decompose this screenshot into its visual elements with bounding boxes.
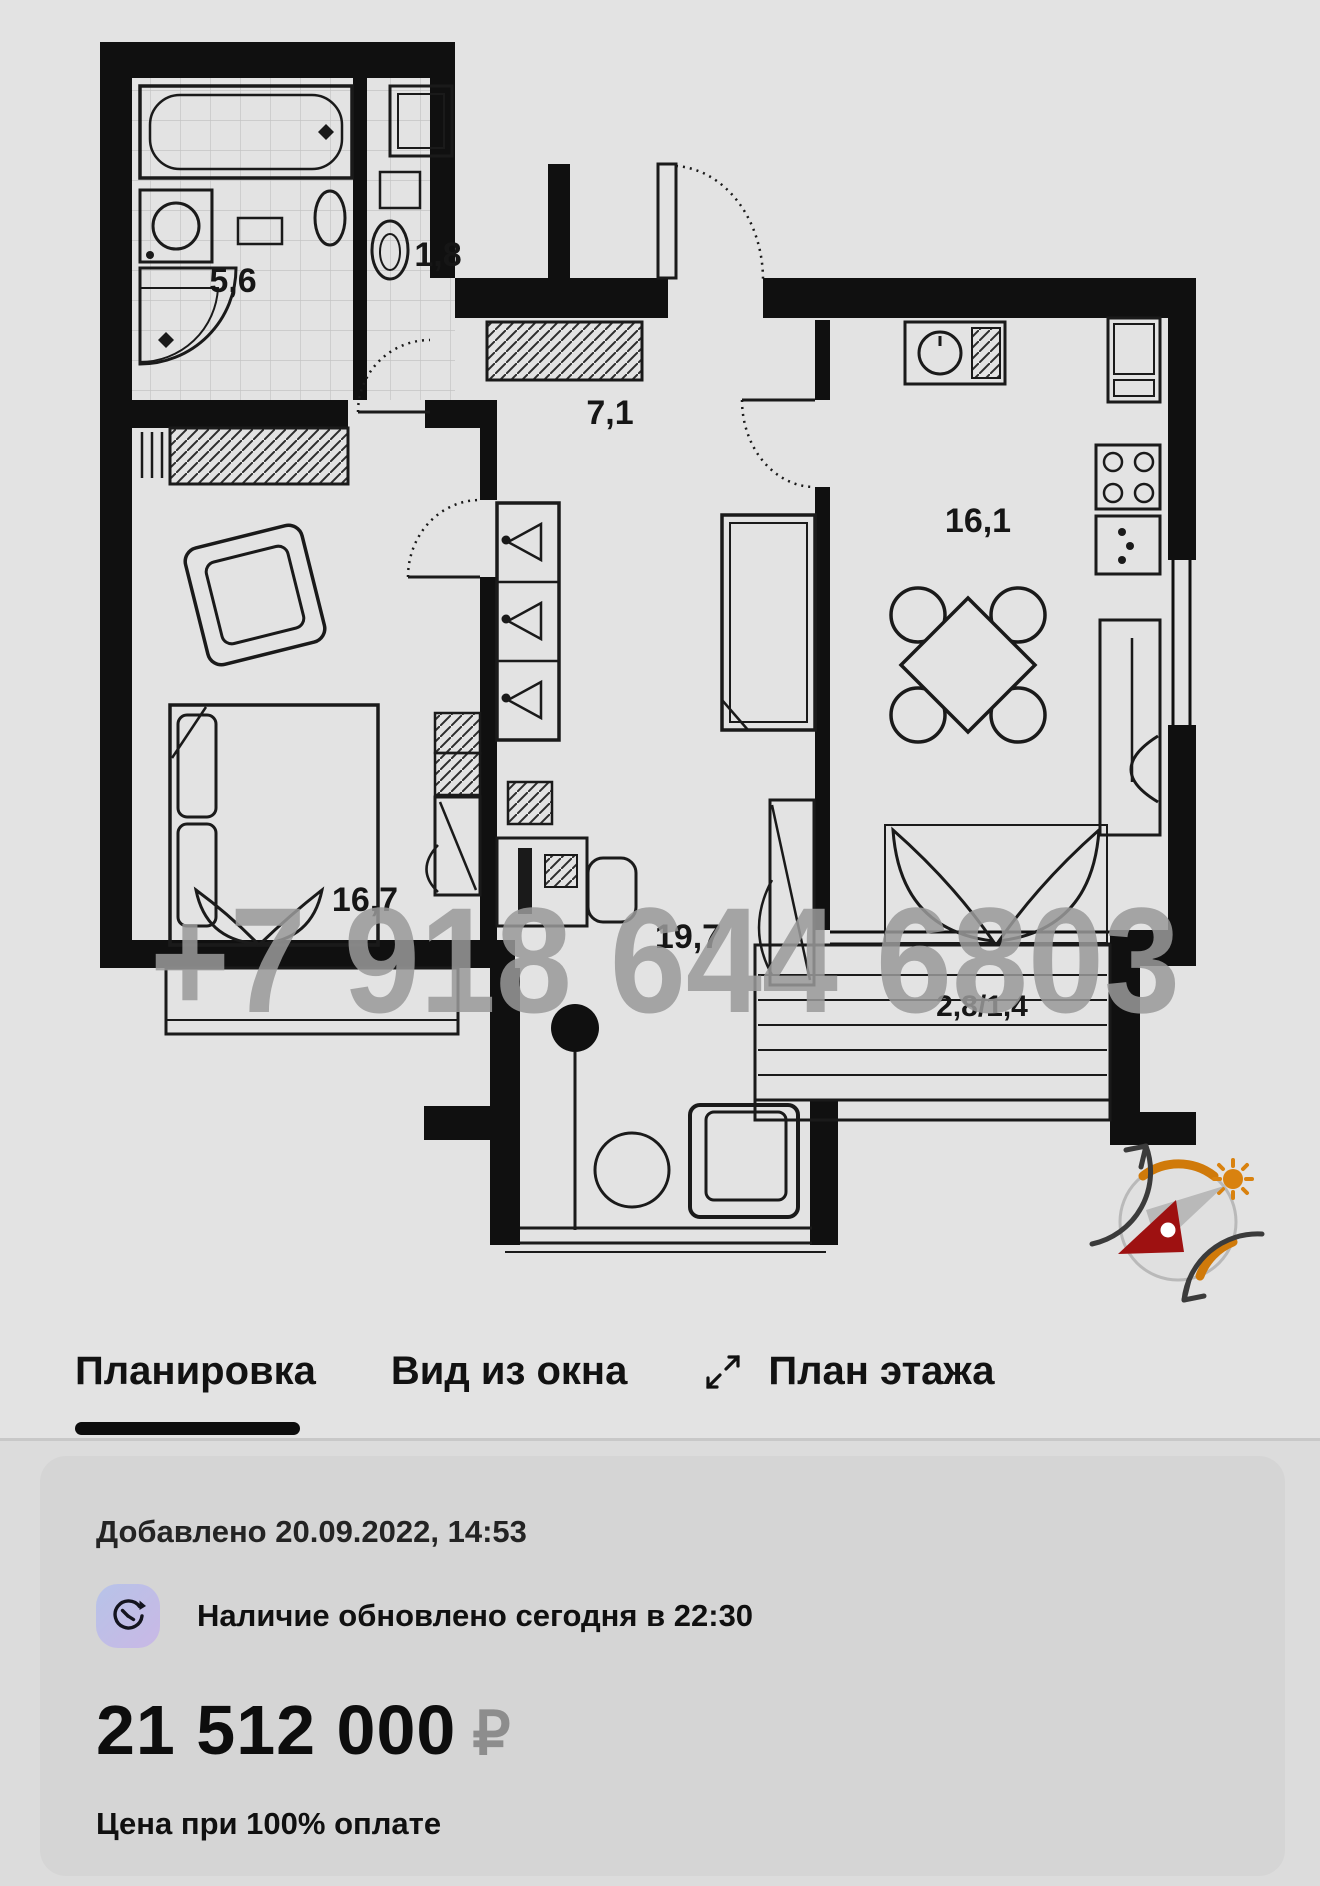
label-bathroom: 5,6: [209, 262, 256, 300]
balcony-rail: [755, 1100, 1110, 1120]
fridge: [1108, 318, 1160, 402]
active-tab-underline: [75, 1422, 300, 1435]
availability-row: Наличие обновлено сегодня в 22:30: [96, 1584, 1229, 1648]
label-kitchen: 16,1: [945, 502, 1011, 540]
round-table: [595, 1133, 669, 1207]
tab-floor-plan-label: План этажа: [768, 1349, 994, 1394]
wardrobe-hatch: [170, 428, 348, 484]
kitchen-window: [1166, 560, 1198, 725]
hanger-icon: [502, 524, 542, 718]
kitchen-fixtures: [891, 318, 1160, 835]
bedroom-door: [408, 500, 480, 577]
dining-table: [891, 588, 1045, 742]
price-card: Добавлено 20.09.2022, 14:53 Наличие обно…: [40, 1456, 1285, 1876]
currency-ruble-sign: ₽: [472, 1699, 510, 1769]
dresser-hatch: [435, 753, 480, 795]
clock-icon-badge: [96, 1584, 160, 1648]
kitchen-sink: [1131, 736, 1158, 802]
sun-icon: [1214, 1160, 1252, 1198]
label-hallway: 7,1: [586, 394, 633, 432]
armchair-bedroom: [182, 522, 327, 667]
shelf-hatch: [508, 782, 552, 824]
tab-bar: Планировка Вид из окна План этажа: [75, 1349, 995, 1394]
cabinet-tall: [722, 515, 815, 730]
hall-shaft-hatch: [487, 322, 642, 380]
entry-door: [658, 164, 763, 280]
expand-icon: [702, 1351, 744, 1393]
date-added: Добавлено 20.09.2022, 14:53: [96, 1514, 1229, 1550]
pillow: [178, 715, 216, 817]
availability-text: Наличие обновлено сегодня в 22:30: [197, 1598, 753, 1634]
tab-floor-plan[interactable]: План этажа: [702, 1349, 994, 1394]
label-wc: 1,8: [414, 236, 461, 274]
clock-refresh-icon: [109, 1597, 147, 1635]
dresser-hatch: [435, 713, 480, 753]
compass-icon: [1092, 1146, 1262, 1300]
price-value: 21 512 000: [96, 1690, 456, 1770]
tab-window-view[interactable]: Вид из окна: [391, 1349, 627, 1394]
floor-plan-svg: 5,6 1,8 7,1 16,1 16,7 19,7 2,8/1,4 +7 91…: [0, 0, 1320, 1310]
sink-counter: [1100, 620, 1160, 835]
kitchen-door: [742, 400, 815, 487]
price-note: Цена при 100% оплате: [96, 1806, 1229, 1842]
listing-page: 5,6 1,8 7,1 16,1 16,7 19,7 2,8/1,4 +7 91…: [0, 0, 1320, 1886]
watermark-phone: +7 918 644 6803: [150, 876, 1180, 1044]
floor-plan-image[interactable]: 5,6 1,8 7,1 16,1 16,7 19,7 2,8/1,4 +7 91…: [0, 0, 1320, 1310]
price-row: 21 512 000 ₽: [96, 1690, 1229, 1770]
tab-layout[interactable]: Планировка: [75, 1349, 316, 1394]
